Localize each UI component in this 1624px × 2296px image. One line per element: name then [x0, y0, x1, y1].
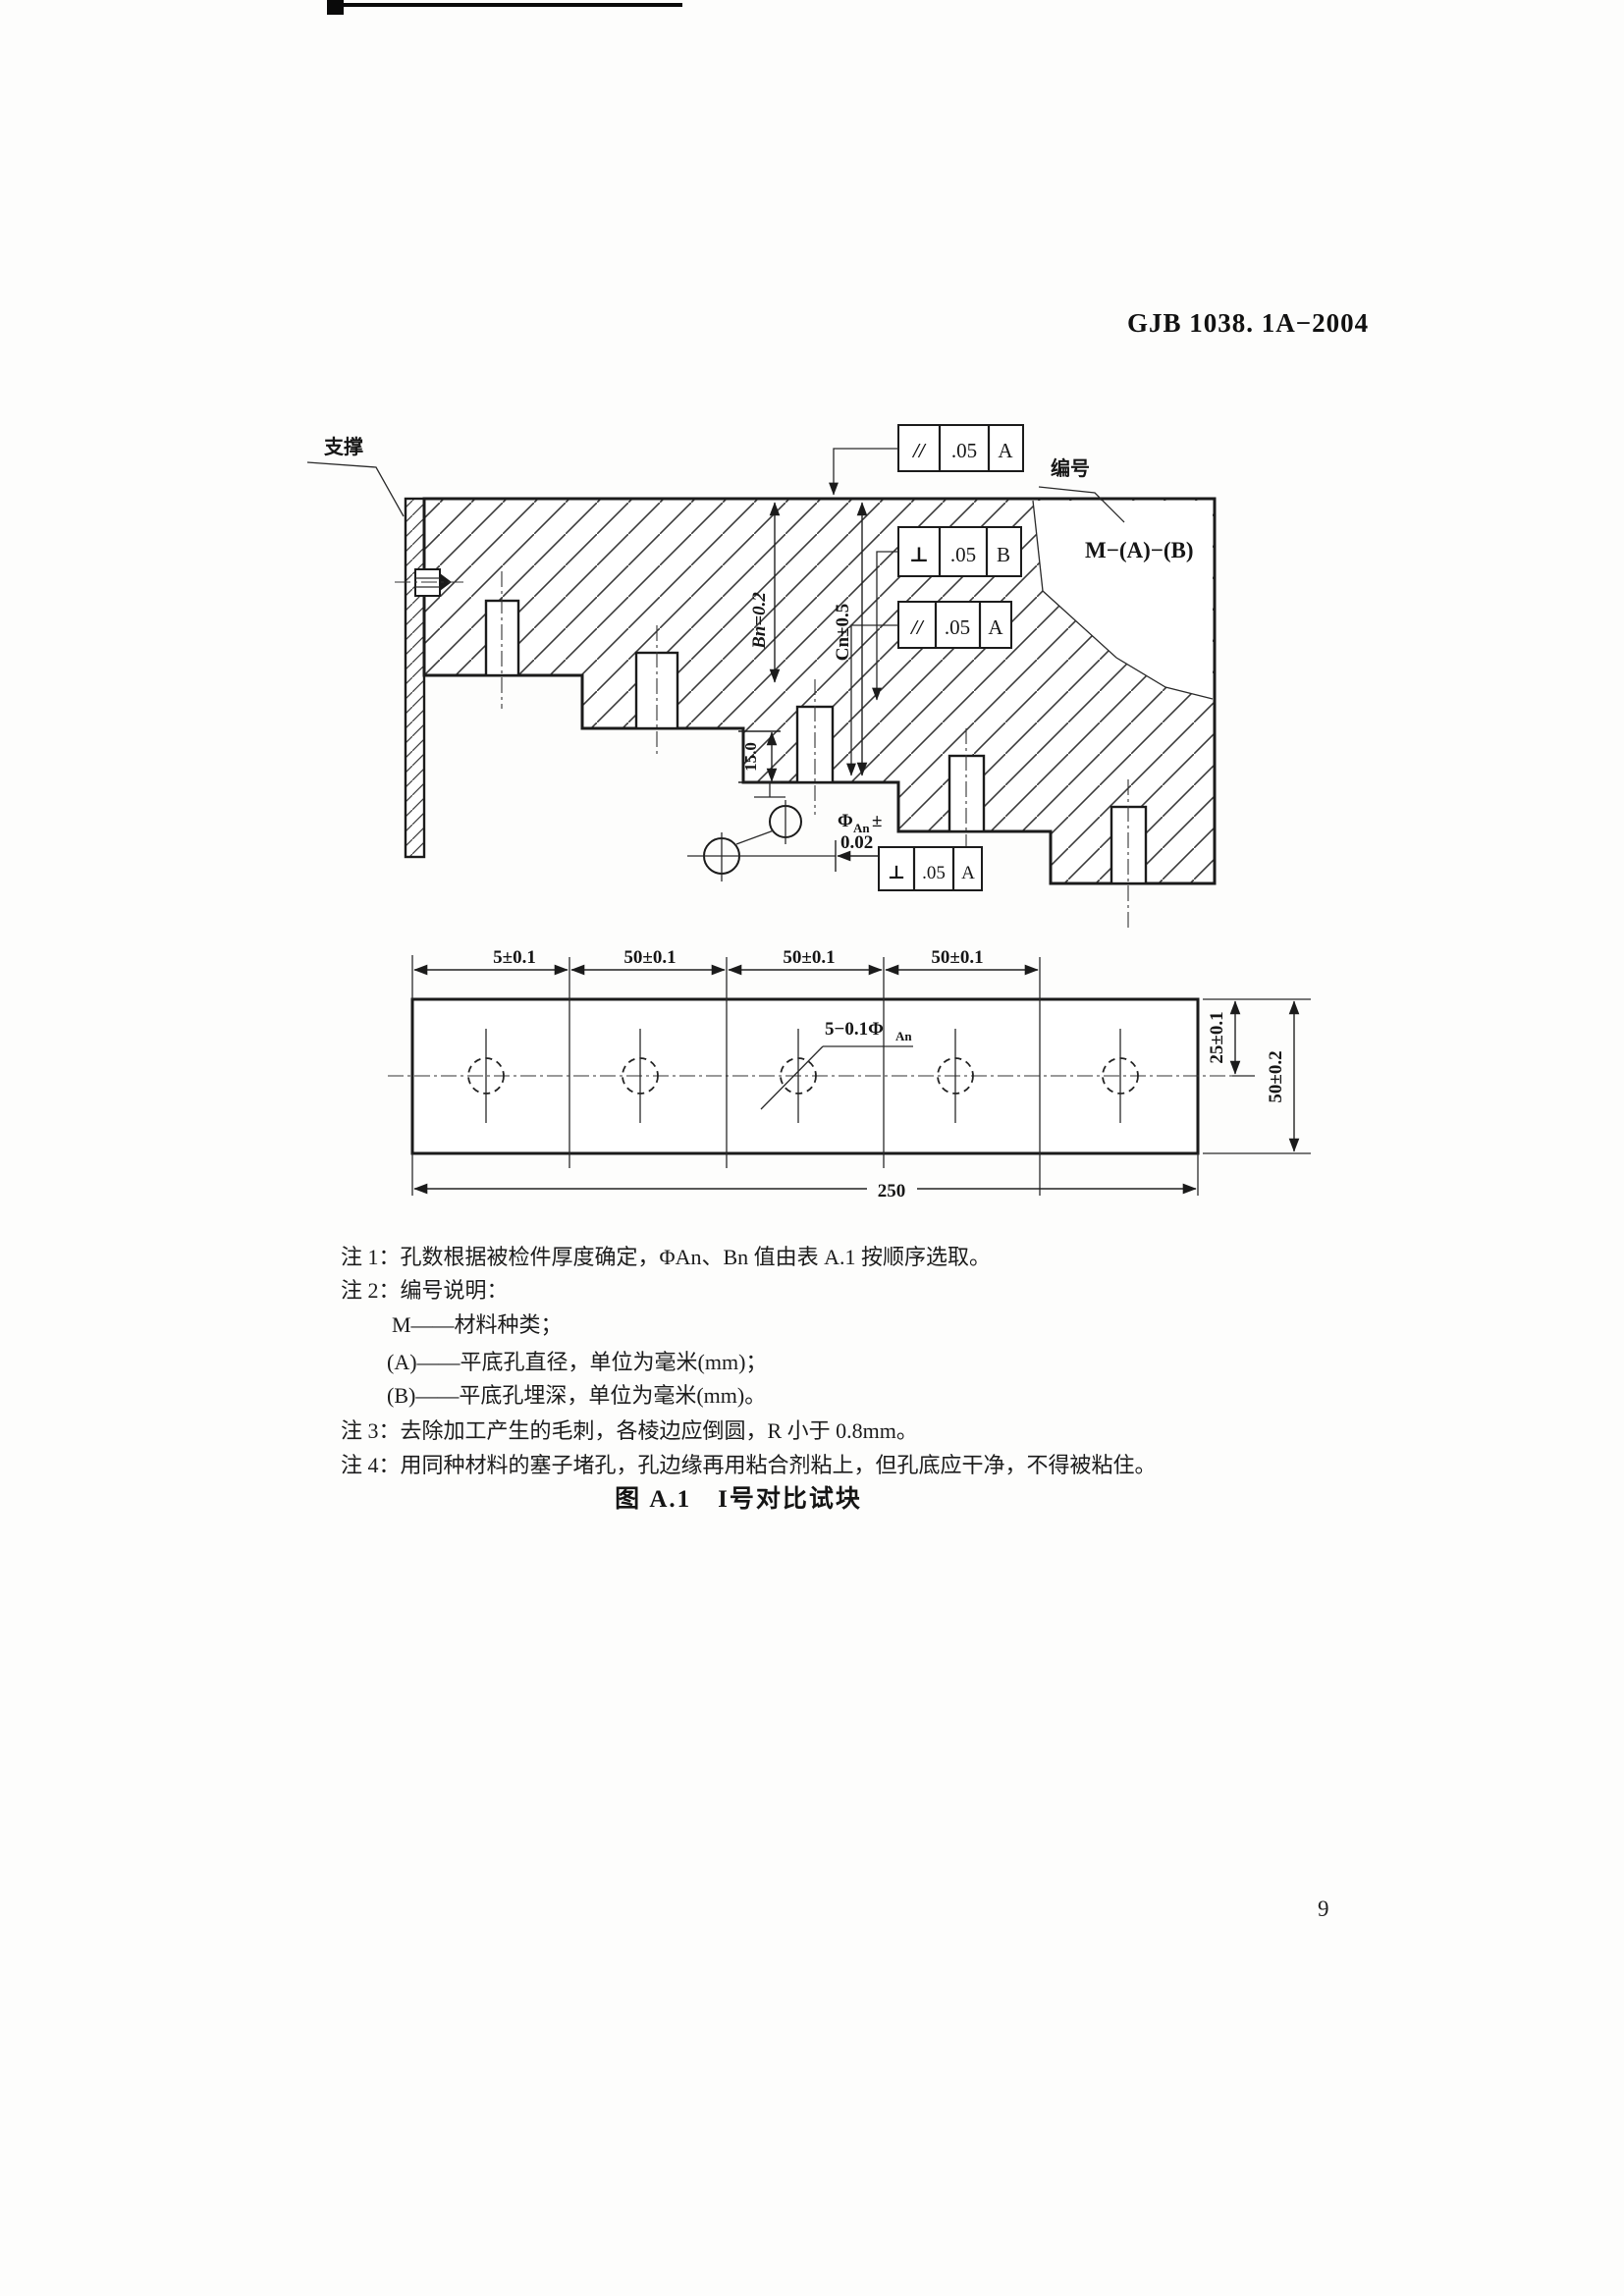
- svg-text:An: An: [895, 1029, 912, 1043]
- svg-text:50±0.2: 50±0.2: [1266, 1050, 1286, 1102]
- support-label: 支撑: [324, 435, 363, 458]
- support-leader-line: [307, 462, 404, 516]
- note-2-item-m: M——材料种类；: [392, 1308, 563, 1339]
- note-1: 注 1：孔数根据被检件厚度确定，ΦAn、Bn 值由表 A.1 按顺序选取。: [341, 1240, 991, 1271]
- support-wall: [406, 499, 424, 857]
- perpendicular-icon: ⊥: [888, 863, 905, 883]
- svg-text:A: A: [961, 863, 975, 883]
- svg-text:.05: .05: [922, 863, 946, 883]
- page-number: 9: [1318, 1896, 1329, 1922]
- note-3: 注 3：去除加工产生的毛刺，各棱边应倒圆，R 小于 0.8mm。: [341, 1414, 918, 1445]
- id-label: 编号: [1051, 456, 1090, 480]
- svg-text:Cn±0.5: Cn±0.5: [833, 604, 853, 661]
- svg-text:250: 250: [878, 1181, 906, 1201]
- svg-text:Bn=0.2: Bn=0.2: [749, 592, 770, 650]
- figure-a1-drawing: 支撑 编号 M−(A)−(B) // .05 A ⊥: [0, 0, 1624, 2296]
- svg-text:50±0.1: 50±0.1: [623, 947, 676, 968]
- tolerance-frame-bottom: ⊥ .05 A: [879, 847, 982, 890]
- note-4: 注 4：用同种材料的塞子堵孔，孔边缘再用粘合剂粘上，但孔底应干净，不得被粘住。: [341, 1448, 1157, 1479]
- perpendicular-icon: ⊥: [909, 543, 929, 566]
- svg-text:A: A: [988, 615, 1003, 639]
- parallel-icon: //: [909, 615, 925, 639]
- document-page: GJB 1038. 1A−2004: [0, 0, 1624, 2296]
- svg-text:5±0.1: 5±0.1: [493, 947, 536, 968]
- svg-text:±: ±: [872, 811, 882, 831]
- svg-text:50±0.1: 50±0.1: [931, 947, 983, 968]
- svg-text:.05: .05: [945, 615, 970, 639]
- svg-text:B: B: [997, 543, 1010, 566]
- plan-view: 5±0.1 50±0.1 50±0.1 50±0.1 5−0.1Φ An 25±…: [388, 947, 1311, 1201]
- svg-text:25±0.1: 25±0.1: [1207, 1011, 1227, 1063]
- svg-text:15.0: 15.0: [741, 742, 760, 772]
- dim-hole-diameter: Φ An ± 0.02: [836, 811, 882, 872]
- svg-text:.05: .05: [950, 543, 976, 566]
- marking-text: M−(A)−(B): [1085, 538, 1194, 562]
- tolerance-frame-top: // .05 A: [834, 425, 1023, 495]
- dim-total-length: 250: [414, 1181, 1196, 1201]
- svg-text:50±0.1: 50±0.1: [783, 947, 835, 968]
- svg-text:A: A: [998, 439, 1013, 462]
- svg-text:0.02: 0.02: [840, 832, 873, 853]
- figure-caption: 图 A.1 I号对比试块: [493, 1479, 984, 1515]
- svg-text:5−0.1Φ: 5−0.1Φ: [825, 1019, 884, 1040]
- note-2-item-a: (A)——平底孔直径，单位为毫米(mm)；: [387, 1345, 767, 1376]
- svg-text:Φ: Φ: [838, 811, 853, 831]
- hole-projection-circles: [687, 783, 836, 881]
- note-2-item-b: (B)——平底孔埋深，单位为毫米(mm)。: [387, 1378, 766, 1410]
- parallel-icon: //: [911, 439, 927, 462]
- section-view: 支撑 编号 M−(A)−(B) // .05 A ⊥: [307, 425, 1215, 928]
- note-2: 注 2：编号说明：: [341, 1273, 509, 1305]
- svg-text:.05: .05: [951, 439, 977, 462]
